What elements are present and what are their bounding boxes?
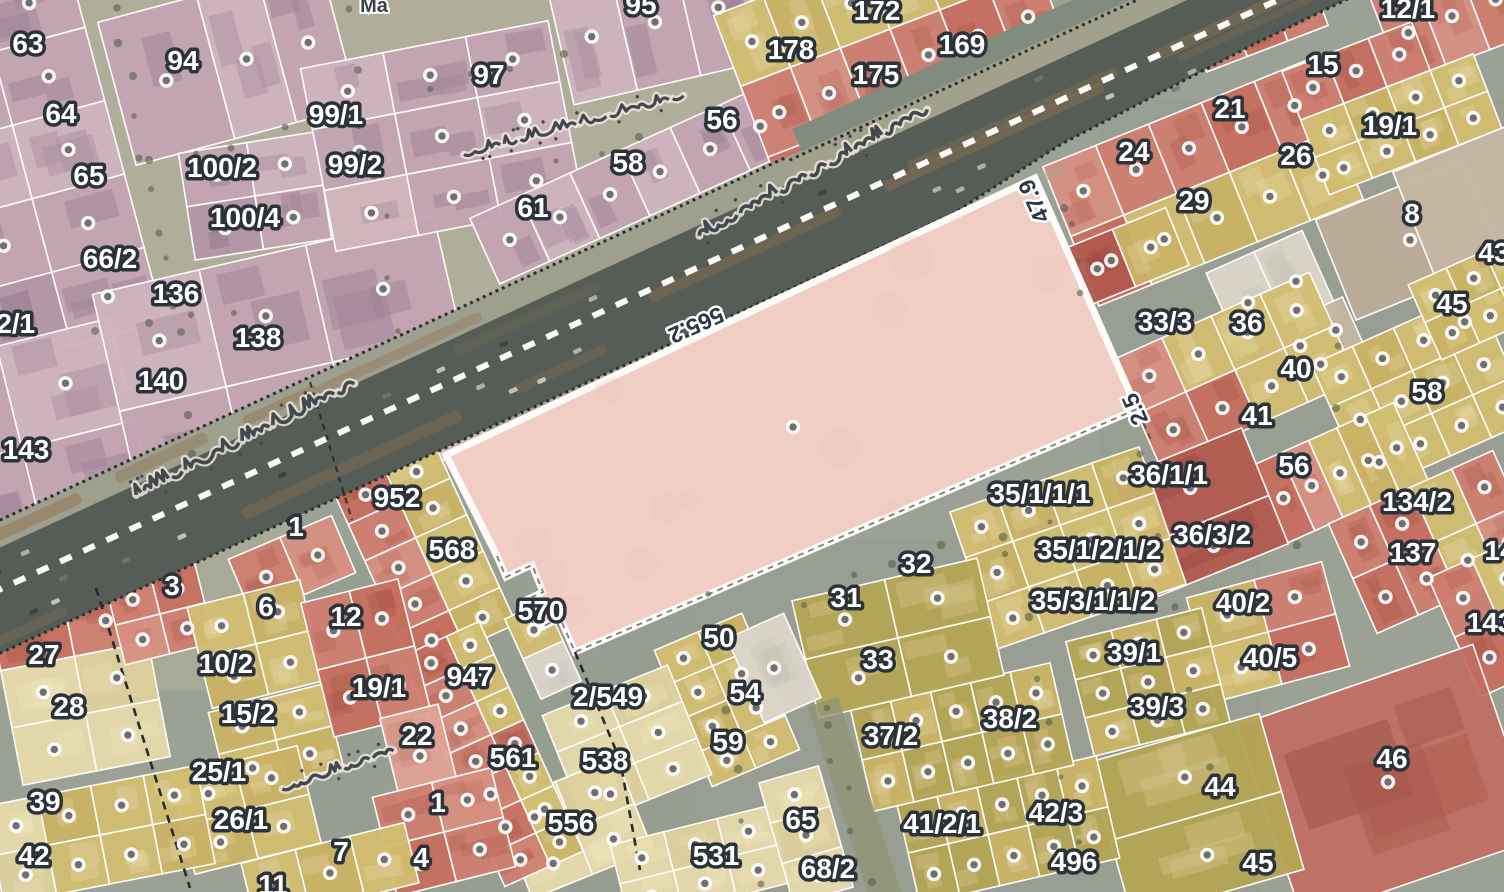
- svg-text:134/2: 134/2: [1382, 486, 1452, 517]
- svg-text:22: 22: [401, 720, 432, 751]
- svg-text:138: 138: [235, 322, 282, 353]
- svg-text:26: 26: [1280, 140, 1311, 171]
- svg-text:1: 1: [288, 511, 304, 542]
- svg-text:97: 97: [473, 59, 504, 90]
- svg-text:178: 178: [768, 34, 815, 65]
- svg-text:952: 952: [374, 482, 421, 513]
- svg-text:100/2: 100/2: [187, 152, 257, 183]
- svg-text:35/3/1/1/2: 35/3/1/1/2: [1031, 585, 1156, 616]
- svg-text:56: 56: [706, 104, 737, 135]
- svg-text:947: 947: [447, 661, 494, 692]
- svg-text:41: 41: [1241, 400, 1272, 431]
- svg-text:15/2: 15/2: [221, 698, 276, 729]
- svg-text:38/2: 38/2: [983, 703, 1038, 734]
- svg-text:44: 44: [1204, 771, 1236, 802]
- svg-text:43: 43: [1478, 237, 1504, 268]
- svg-text:50: 50: [703, 622, 734, 653]
- svg-text:21: 21: [1214, 93, 1245, 124]
- svg-text:40/2: 40/2: [1216, 587, 1271, 618]
- svg-text:140: 140: [138, 365, 185, 396]
- svg-text:63: 63: [12, 28, 43, 59]
- svg-text:27: 27: [28, 639, 59, 670]
- svg-text:94: 94: [167, 45, 199, 76]
- svg-text:29: 29: [1178, 185, 1209, 216]
- svg-text:58: 58: [612, 147, 643, 178]
- svg-text:8: 8: [1404, 198, 1420, 229]
- svg-text:39/1: 39/1: [1107, 637, 1162, 668]
- svg-text:137: 137: [1390, 537, 1437, 568]
- svg-text:19/1: 19/1: [352, 672, 407, 703]
- svg-text:45: 45: [1436, 288, 1467, 319]
- svg-text:68/2: 68/2: [801, 853, 856, 884]
- svg-text:52/1: 52/1: [0, 308, 35, 339]
- svg-text:1: 1: [430, 787, 446, 818]
- svg-text:15: 15: [1307, 49, 1338, 80]
- svg-text:14: 14: [1484, 535, 1504, 566]
- svg-text:496: 496: [1051, 846, 1098, 877]
- svg-text:175: 175: [853, 59, 900, 90]
- svg-text:95: 95: [625, 0, 656, 20]
- svg-text:26/1: 26/1: [214, 804, 269, 835]
- svg-text:65: 65: [73, 160, 104, 191]
- svg-text:42/3: 42/3: [1029, 797, 1084, 828]
- svg-text:40/5: 40/5: [1243, 642, 1298, 673]
- svg-text:143: 143: [3, 434, 50, 465]
- svg-text:4: 4: [413, 842, 429, 873]
- svg-text:59: 59: [712, 726, 743, 757]
- svg-text:3: 3: [164, 570, 180, 601]
- svg-text:12: 12: [330, 601, 361, 632]
- svg-text:172: 172: [854, 0, 901, 26]
- svg-text:7: 7: [333, 836, 349, 867]
- svg-text:6: 6: [258, 591, 274, 622]
- svg-text:37/2: 37/2: [864, 720, 919, 751]
- svg-text:42: 42: [18, 840, 49, 871]
- svg-text:35/1/2/1/2: 35/1/2/1/2: [1037, 534, 1162, 565]
- svg-text:36/1/1: 36/1/1: [1130, 459, 1208, 490]
- svg-text:561: 561: [490, 742, 537, 773]
- svg-text:39/3: 39/3: [1130, 691, 1185, 722]
- svg-text:36: 36: [1231, 307, 1262, 338]
- svg-text:538: 538: [582, 745, 629, 776]
- svg-text:32: 32: [900, 548, 931, 579]
- svg-text:12/1: 12/1: [1381, 0, 1436, 24]
- svg-text:24: 24: [1118, 136, 1150, 167]
- svg-text:136: 136: [153, 278, 200, 309]
- svg-text:100/4: 100/4: [210, 202, 280, 233]
- svg-text:531: 531: [693, 840, 740, 871]
- svg-text:169: 169: [939, 29, 986, 60]
- svg-text:556: 556: [548, 807, 595, 838]
- svg-text:2/549: 2/549: [573, 681, 643, 712]
- svg-text:99/2: 99/2: [328, 149, 383, 180]
- svg-text:54: 54: [729, 677, 761, 708]
- svg-text:33/3: 33/3: [1138, 306, 1193, 337]
- svg-text:39: 39: [29, 786, 60, 817]
- svg-text:64: 64: [45, 98, 77, 129]
- svg-text:36/3/2: 36/3/2: [1173, 519, 1251, 550]
- svg-text:Ma: Ma: [360, 0, 389, 17]
- svg-text:28: 28: [53, 691, 84, 722]
- svg-text:61: 61: [517, 192, 548, 223]
- svg-text:35/1/1/1: 35/1/1/1: [989, 478, 1090, 509]
- svg-text:568: 568: [429, 534, 476, 565]
- svg-text:65: 65: [785, 804, 816, 835]
- svg-text:56: 56: [1278, 450, 1309, 481]
- svg-text:31: 31: [830, 582, 861, 613]
- svg-text:11: 11: [258, 869, 288, 892]
- svg-text:40: 40: [1280, 353, 1311, 384]
- svg-text:58: 58: [1411, 376, 1442, 407]
- svg-text:45: 45: [1242, 847, 1273, 878]
- svg-text:46: 46: [1376, 743, 1407, 774]
- svg-text:19/1: 19/1: [1363, 110, 1418, 141]
- svg-text:66/2: 66/2: [83, 243, 138, 274]
- svg-text:570: 570: [518, 595, 565, 626]
- svg-text:33: 33: [862, 644, 893, 675]
- svg-text:10/2: 10/2: [199, 648, 254, 679]
- svg-text:143: 143: [1467, 607, 1504, 638]
- svg-text:99/1: 99/1: [309, 99, 364, 130]
- svg-text:25/1: 25/1: [192, 756, 247, 787]
- svg-text:41/2/1: 41/2/1: [903, 808, 981, 839]
